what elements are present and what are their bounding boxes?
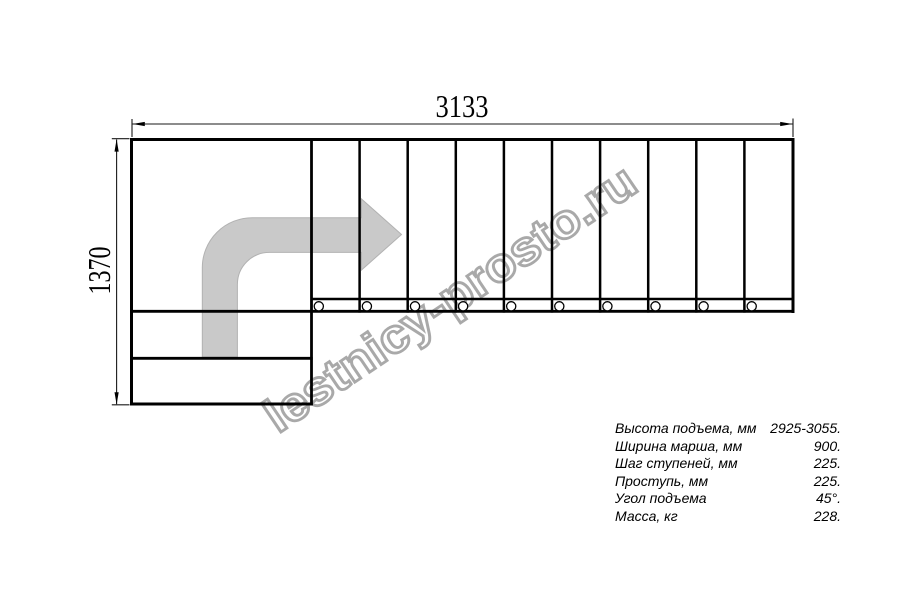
- svg-text:3133: 3133: [436, 89, 489, 124]
- svg-text:1370: 1370: [82, 247, 117, 295]
